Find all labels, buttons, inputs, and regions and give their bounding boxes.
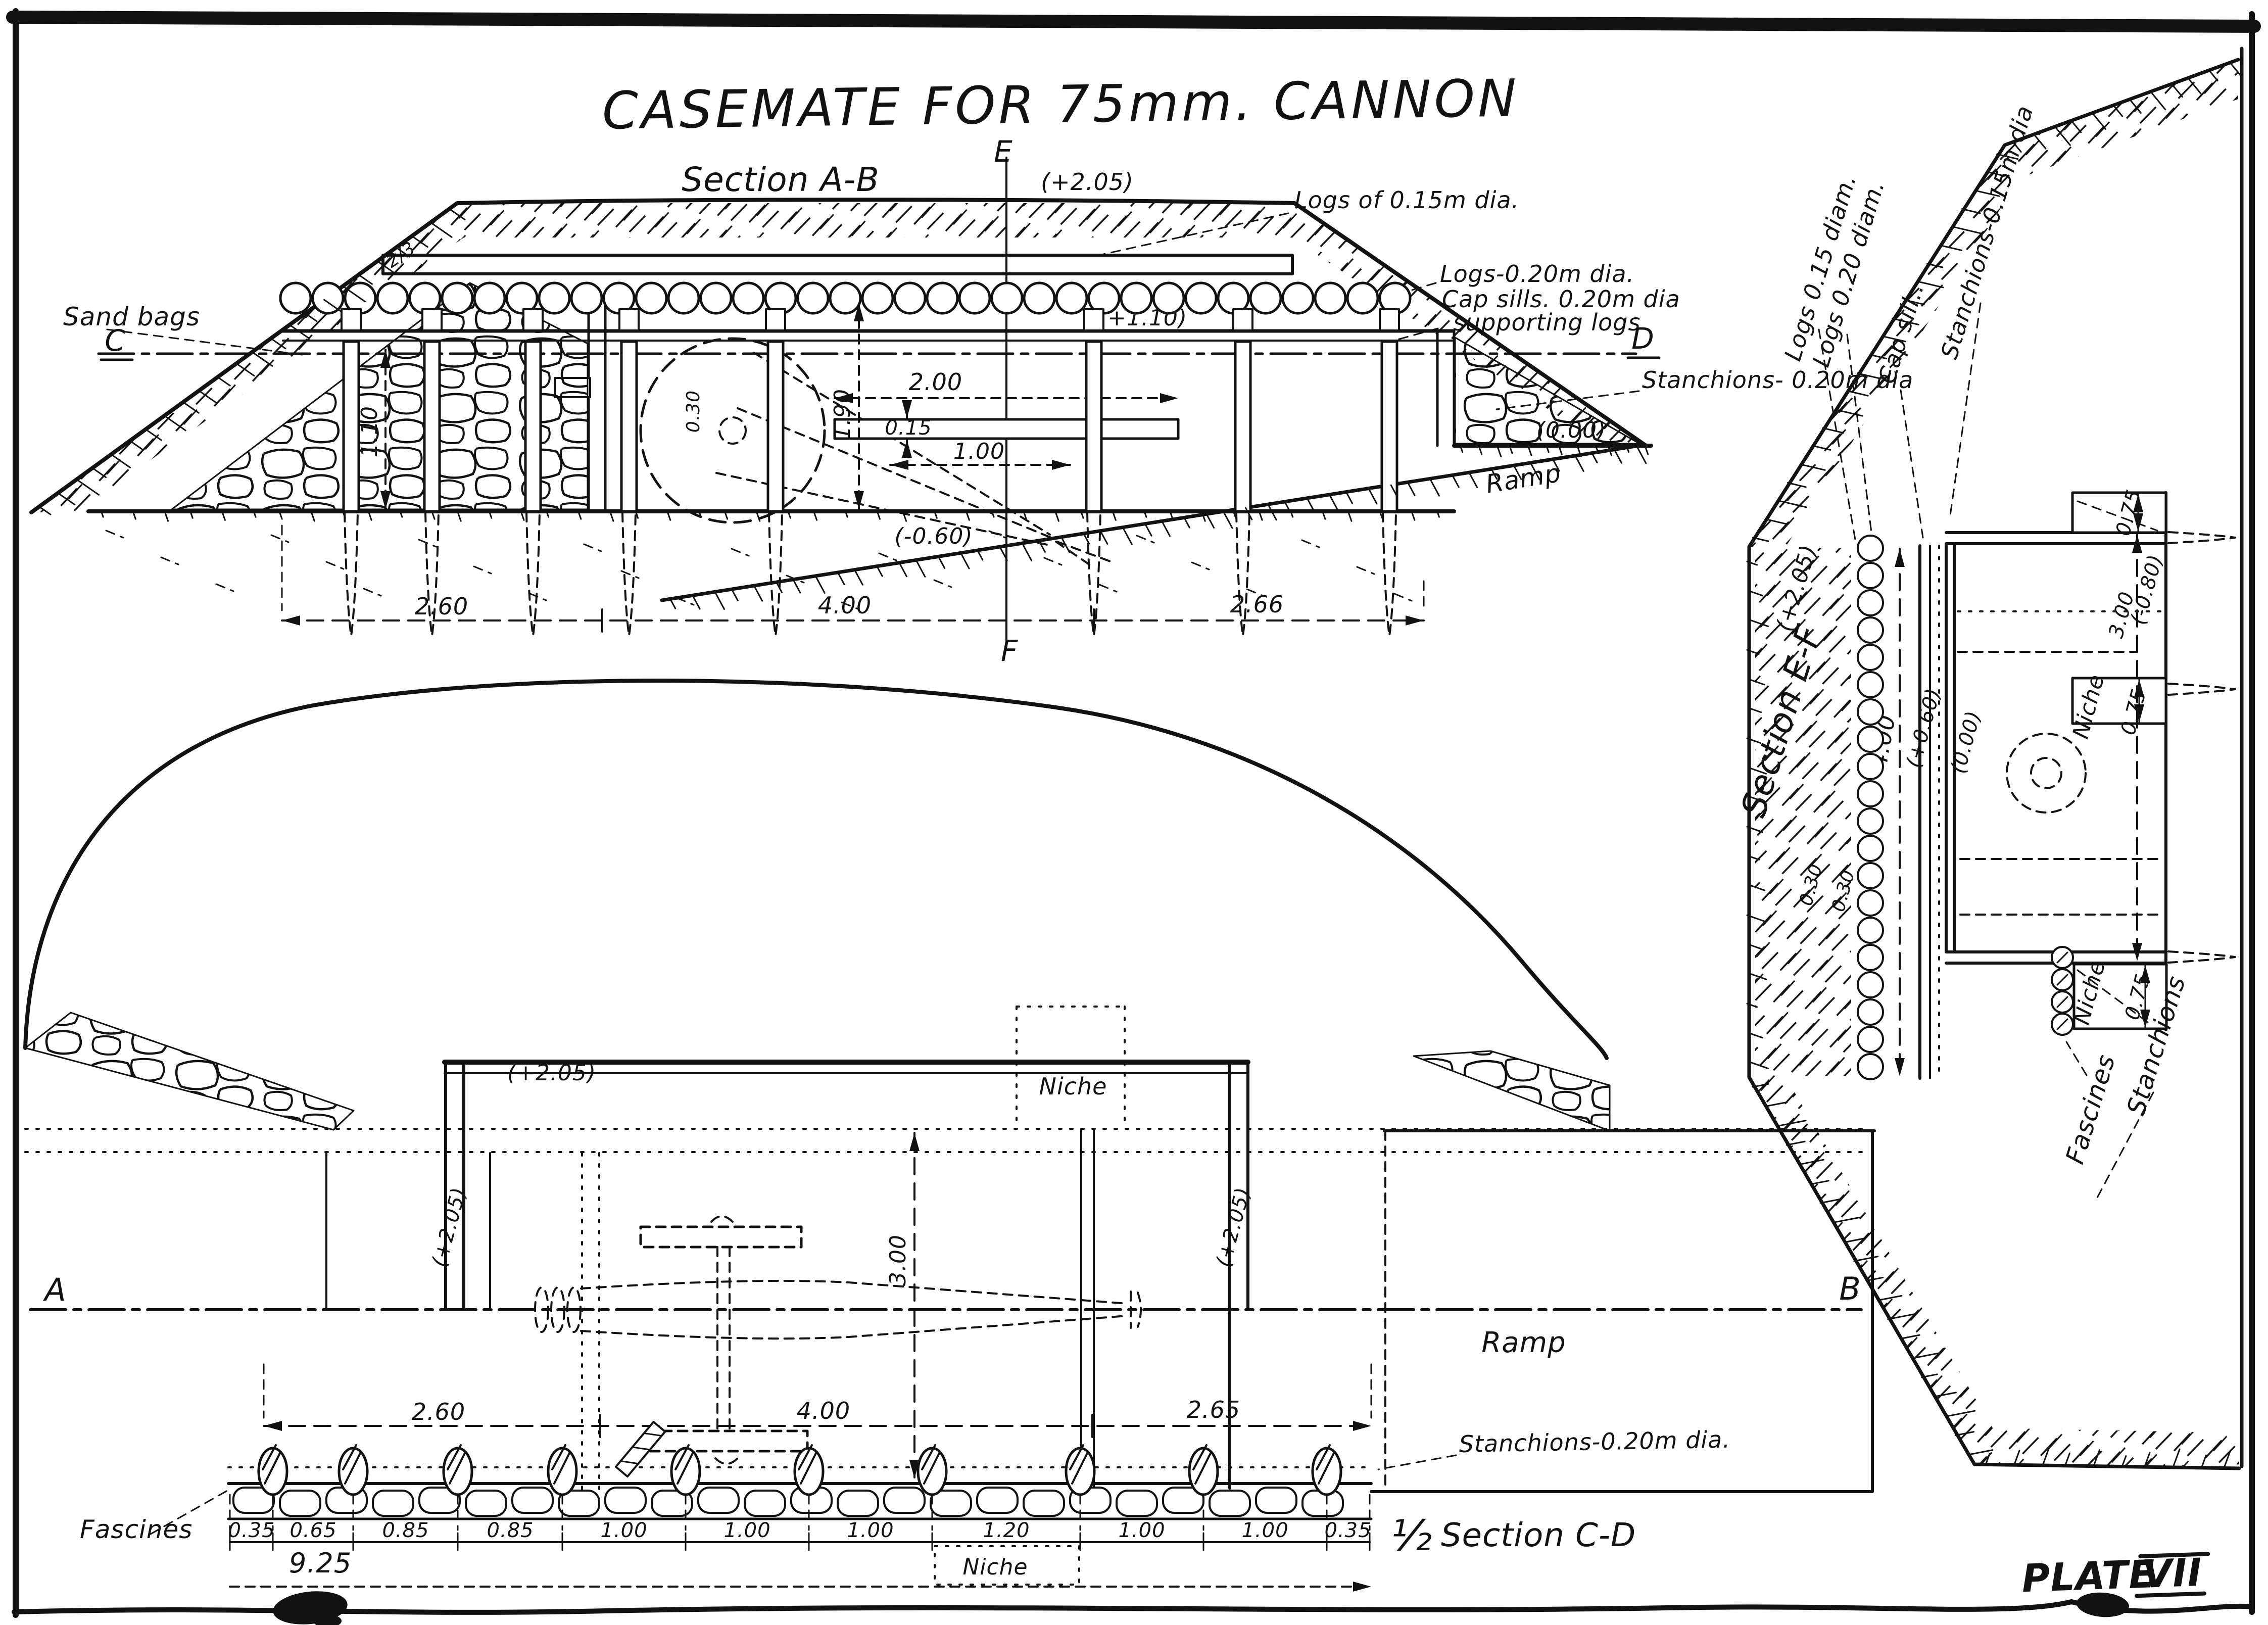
ef-stanchion-tips <box>2168 532 2235 963</box>
log-icon <box>636 283 666 313</box>
spacing-6: 1.00 <box>847 1519 894 1542</box>
plan-niche-bottom-label: Niche <box>962 1554 1028 1580</box>
soil-mark <box>584 544 601 551</box>
spacing-0: 0.35 <box>228 1519 275 1542</box>
fascine-stone-icon <box>745 1491 785 1516</box>
dim-span-label: 2.00 <box>909 368 962 396</box>
dim-interior-label: 1.90 <box>830 389 855 440</box>
grass-tick <box>1223 511 1232 529</box>
grass-tick <box>754 586 762 601</box>
log-icon <box>1858 863 1883 888</box>
soil-mark <box>1137 536 1154 543</box>
grass-tick <box>732 589 738 601</box>
grass-tick <box>815 576 825 593</box>
soil-mark <box>364 589 381 596</box>
grass-tick <box>1162 521 1170 536</box>
log-icon <box>1858 890 1883 916</box>
log-icon <box>1858 972 1883 997</box>
log-icon <box>1858 563 1883 588</box>
dim-wall-height-label: 1.10 <box>357 406 382 457</box>
soil-mark <box>1357 567 1374 574</box>
log-icon <box>1858 1027 1883 1052</box>
ef-gun-icon <box>2007 734 2086 812</box>
log-icon <box>668 283 699 313</box>
plan-fascines-label: Fascines <box>80 1515 192 1544</box>
stanchion-head-icon <box>1066 1448 1094 1495</box>
cd-underlines <box>101 358 1659 360</box>
stanchion-post <box>424 342 440 511</box>
stanchion-post <box>525 342 541 511</box>
log-icon <box>733 283 763 313</box>
point-b: B <box>1839 1270 1861 1307</box>
grass-tick <box>1408 482 1415 496</box>
grass-tick <box>1453 475 1459 487</box>
soil-mark <box>474 566 491 573</box>
border-bottom <box>14 1602 2252 1612</box>
soil-mark <box>934 580 951 587</box>
post-cap <box>619 309 639 330</box>
platform-bar-bottom <box>647 1431 807 1451</box>
post-cap <box>766 309 785 330</box>
grass-tick <box>1145 524 1151 536</box>
soil-mark <box>1394 594 1412 601</box>
log-icon <box>1858 999 1883 1025</box>
post-tip-icon <box>2168 532 2235 543</box>
log-icon <box>1858 645 1883 670</box>
log-icon <box>1858 945 1883 970</box>
plate-label: PLATE VII <box>2021 1549 2209 1601</box>
plan-stone-band-left <box>25 1013 354 1130</box>
point-f: F <box>1001 634 1019 668</box>
post-cap <box>523 309 543 330</box>
soil-mark <box>1044 558 1061 565</box>
stanchion-post <box>1086 342 1101 511</box>
dim-left-label: 2.60 <box>415 593 468 620</box>
plan-entrance-walls <box>326 1153 490 1310</box>
stanchion-post <box>621 342 637 511</box>
plan-right-wall <box>1230 1062 1248 1488</box>
log-icon <box>1250 283 1281 313</box>
grass-tick <box>1100 531 1107 544</box>
plan-niche-top-label: Niche <box>1039 1073 1107 1100</box>
fascine-stone-icon <box>698 1488 739 1513</box>
grass-tick <box>1184 517 1190 528</box>
ef-log-column <box>1858 536 1883 1079</box>
grass-tick <box>1369 489 1377 504</box>
post-tip-icon <box>2168 951 2235 963</box>
fascine-stone-icon <box>838 1491 878 1516</box>
dim-right-label: 2.66 <box>1230 591 1284 618</box>
cannon-hub-icon <box>719 417 746 444</box>
ef-fascine-roll <box>2052 947 2073 1035</box>
grass-tick <box>1346 492 1352 503</box>
log-icon <box>701 283 731 313</box>
fascine-stone-icon <box>884 1488 925 1513</box>
plan-dim-depth-label: 3.00 <box>885 1234 911 1286</box>
log-icon <box>1858 727 1883 752</box>
plate-word: PLATE <box>2021 1551 2156 1601</box>
stanchion-head-icon <box>548 1448 576 1495</box>
log-icon <box>1858 808 1883 834</box>
grass-tick <box>715 592 724 609</box>
log-icon <box>442 283 472 313</box>
fascine-row <box>233 1488 1343 1516</box>
fascine-stone-icon <box>605 1488 646 1513</box>
plan-ramp-label: Ramp <box>1481 1326 1566 1359</box>
section-ab-title: Section A-B <box>682 160 879 199</box>
elev-floor-ab: (-0.60) <box>894 523 973 549</box>
parapet-outline <box>25 681 1607 1058</box>
post-cap <box>342 309 361 330</box>
fascine-stone-icon <box>512 1488 553 1513</box>
post-cap <box>1084 309 1103 330</box>
spacing-3: 0.85 <box>487 1519 534 1542</box>
post-tip-icon <box>526 512 540 636</box>
soil-mark <box>326 562 344 569</box>
grass-tick <box>1430 479 1439 496</box>
fascine-stone-icon <box>1117 1491 1157 1516</box>
log-icon <box>474 283 505 313</box>
dim-wall-thickness-label: 0.30 <box>683 390 704 433</box>
soil-mark <box>1192 562 1209 569</box>
dim-plank-label: 0.15 <box>885 416 932 440</box>
page-title: CASEMATE FOR 75mm. CANNON <box>602 68 1520 141</box>
spacing-2: 0.85 <box>382 1519 429 1542</box>
soil-mark <box>677 598 694 605</box>
ef-lower-slope-hatch <box>1749 1075 2239 1468</box>
grass-tick <box>961 553 969 568</box>
log-icon <box>571 283 602 313</box>
stanchion-head-icon <box>259 1448 287 1495</box>
log-icon <box>1858 699 1883 725</box>
log-icon <box>1024 283 1054 313</box>
stanchion-post <box>1235 342 1250 511</box>
caption-section-cd: Section C-D <box>1441 1517 1636 1554</box>
fascine-stone-icon <box>373 1491 413 1516</box>
post-tip-icon <box>2168 684 2235 695</box>
log-icon <box>1858 536 1883 561</box>
grass-tick <box>1039 540 1045 552</box>
log-icon <box>1056 283 1087 313</box>
fascine-stone-icon <box>466 1491 506 1516</box>
plan-inner-wall-left <box>582 1153 599 1490</box>
log-icon <box>830 283 860 313</box>
soil-mark <box>1099 585 1117 592</box>
plate-border <box>13 11 2254 1615</box>
border-top <box>13 17 2254 26</box>
spacing-9: 1.00 <box>1241 1519 1288 1542</box>
plan-dim-left: 2.60 <box>412 1398 465 1425</box>
log-icon <box>1858 754 1883 779</box>
platform-bar-top <box>641 1227 801 1247</box>
dim-mid-label: 4.00 <box>818 592 872 619</box>
log-icon <box>1858 590 1883 615</box>
plan-niche-top-box <box>1017 1007 1125 1129</box>
grass-tick <box>693 595 700 609</box>
log-icon <box>895 283 925 313</box>
log-icon <box>1315 283 1345 313</box>
point-e: E <box>994 134 1013 169</box>
label-sand-bags: Sand bags <box>63 302 200 331</box>
log-icon <box>1858 836 1883 861</box>
soil-mark <box>161 557 178 564</box>
fascine-stone-icon <box>1024 1491 1064 1516</box>
soil-mark <box>216 584 233 591</box>
log-icon <box>377 283 408 313</box>
log-icon <box>862 283 893 313</box>
grass-tick <box>899 563 906 577</box>
post-tip-icon <box>769 512 782 636</box>
grass-tick <box>1023 544 1032 561</box>
post-cap <box>1380 309 1399 330</box>
cannon-wheel-icon <box>641 339 825 522</box>
label-cap-sills-2: supporting logs <box>1453 309 1640 336</box>
grass-tick <box>854 569 862 585</box>
soil-mark <box>106 531 123 538</box>
grass-tick <box>916 560 925 577</box>
log-icon <box>1858 781 1883 806</box>
soil-marks <box>106 531 1412 609</box>
plan-dim-mid: 4.00 <box>797 1397 850 1424</box>
ef-lower-slope <box>1749 1077 2239 1468</box>
log-icon <box>1153 283 1184 313</box>
log-icon <box>1121 283 1151 313</box>
log-icon <box>1186 283 1216 313</box>
grass-tick <box>1575 456 1583 471</box>
dim-clear-label: 1.00 <box>953 439 1005 464</box>
point-a: A <box>42 1271 66 1308</box>
soil-mark <box>989 531 1006 538</box>
grass-tick <box>1207 514 1214 528</box>
grass-tick <box>1614 450 1621 463</box>
log-icon <box>1858 918 1883 943</box>
log-icon <box>1347 283 1378 313</box>
section-ef-view: Section E-F (+2.05) Logs 0.15 diam. Logs… <box>1733 49 2242 1468</box>
label-logs-roof: Logs of 0.15m dia. <box>1294 186 1519 214</box>
log-icon <box>798 283 828 313</box>
log-icon <box>1283 283 1313 313</box>
stanchion-head-icon <box>1189 1448 1218 1495</box>
platform-rail <box>717 1247 730 1431</box>
stanchion-head-icon <box>671 1448 700 1495</box>
label-logs: Logs-0.20m dia. <box>1440 260 1634 288</box>
elev-ground-ef: (0.00) <box>1947 708 1986 776</box>
casemate-plate-page: CASEMATE FOR 75mm. CANNON <box>0 0 2268 1625</box>
plan-stone-band-right <box>1414 1051 1610 1131</box>
grass-tick <box>938 556 944 568</box>
log-icon <box>927 283 957 313</box>
spacing-1: 0.65 <box>289 1519 336 1542</box>
grass-tick <box>1123 528 1132 545</box>
log-icon <box>1858 672 1883 697</box>
spacing-5: 1.00 <box>723 1519 770 1542</box>
grass-tick <box>793 579 800 593</box>
label-ramp-ab: Ramp <box>1484 458 1563 499</box>
plan-elev-interior: (+2.05) <box>507 1060 596 1086</box>
plan-stanchions-label: Stanchions-0.20m dia. <box>1459 1426 1730 1458</box>
elev-crest-ab: (+2.05) <box>1041 168 1134 196</box>
grass-tick <box>1469 472 1477 488</box>
ef-gun-hub-icon <box>2031 758 2061 788</box>
log-icon <box>539 283 569 313</box>
log-icon <box>313 283 343 313</box>
log-icon <box>1858 1054 1883 1079</box>
stanchion-head-icon <box>1313 1448 1341 1495</box>
spacing-4: 1.00 <box>600 1519 647 1542</box>
grass-tick <box>1637 446 1646 463</box>
grass-tick <box>838 573 844 585</box>
stanchion-head-icon <box>444 1448 472 1495</box>
soil-mark <box>1302 540 1319 547</box>
post-cap <box>1233 309 1252 330</box>
log-icon <box>992 283 1022 313</box>
plan-dim-total: 9.25 <box>289 1547 352 1579</box>
post-tip-icon <box>345 512 358 636</box>
post-tip-icon <box>1383 512 1396 636</box>
log-icon <box>280 283 311 313</box>
roof-slab <box>383 255 1292 274</box>
fascine-stone-icon <box>1210 1491 1250 1516</box>
right-wall <box>1437 331 1454 446</box>
fascine-stone-icon <box>977 1488 1018 1513</box>
elev-ground-ab: (0.00) <box>1536 417 1606 443</box>
stanchion-head-icon <box>795 1448 823 1495</box>
soil-mark <box>879 553 896 560</box>
soil-mark <box>271 535 288 542</box>
spacing-8: 1.00 <box>1118 1519 1165 1542</box>
fascine-stone-icon <box>1256 1488 1296 1513</box>
caption-half: ½ <box>1391 1511 1432 1560</box>
grass-tick <box>877 566 883 577</box>
stanchion-head-icon <box>918 1448 946 1495</box>
stanchion-post <box>1382 342 1397 511</box>
soil-mark <box>732 549 749 556</box>
spacing-7: 1.20 <box>983 1519 1030 1542</box>
plate-drawing: CASEMATE FOR 75mm. CANNON <box>0 0 2268 1625</box>
fascine-stone-icon <box>280 1491 320 1516</box>
section-ab-view: Section A-B E F C D Sand bags 2/3 (+2.05… <box>31 134 1913 668</box>
log-icon <box>1858 617 1883 643</box>
plan-dim-right: 2.65 <box>1187 1396 1240 1423</box>
log-icon <box>959 283 990 313</box>
spacing-10: 0.35 <box>1324 1519 1371 1542</box>
soil-mark <box>419 540 436 547</box>
label-fascines-ef: Fascines <box>2060 1051 2121 1168</box>
plan-view: A B (+2.05) Niche (+2.05) (+2.05) Ramp 3… <box>25 681 1874 1587</box>
stanchion-head-icon <box>339 1448 367 1495</box>
post-cap <box>422 309 442 330</box>
stanchion-post <box>344 342 359 511</box>
stanchion-post <box>768 342 783 511</box>
